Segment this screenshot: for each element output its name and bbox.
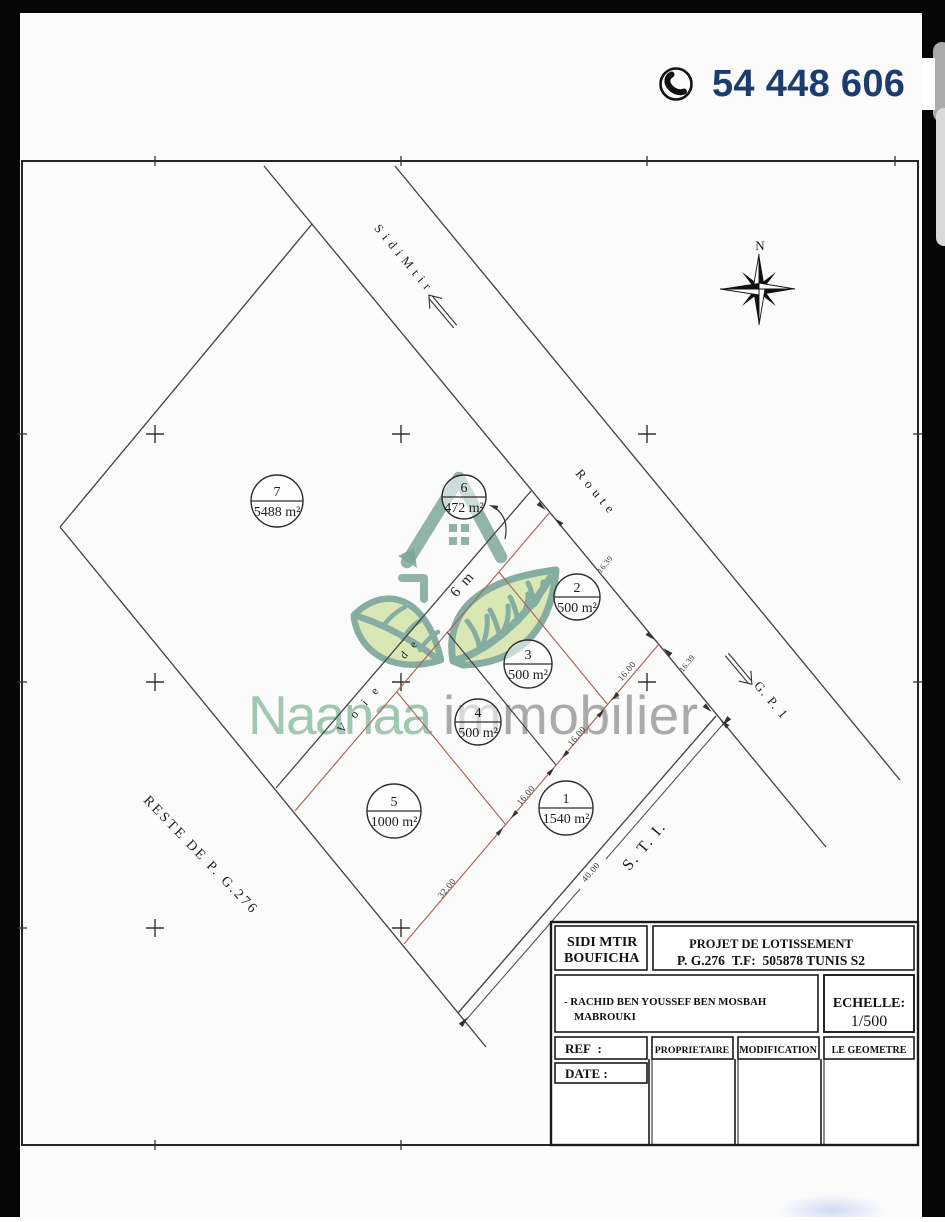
svg-text:1000 m²: 1000 m² xyxy=(371,815,418,830)
svg-text:PROJET DE LOTISSEMENT: PROJET DE LOTISSEMENT xyxy=(689,937,853,951)
svg-text:500 m²: 500 m² xyxy=(508,668,548,683)
svg-text:MODIFICATION: MODIFICATION xyxy=(739,1045,817,1056)
svg-text:N: N xyxy=(755,238,765,253)
svg-text:54 448 606: 54 448 606 xyxy=(712,63,905,105)
svg-text:5: 5 xyxy=(391,795,398,810)
svg-text:LE GEOMETRE: LE GEOMETRE xyxy=(832,1045,907,1056)
svg-text:472 m²: 472 m² xyxy=(444,501,484,516)
svg-text:2: 2 xyxy=(574,581,581,596)
svg-text:P. G.276 T.F: 505878 TUNIS S: P. G.276 T.F: 505878 TUNIS S2 xyxy=(677,953,865,968)
svg-text:500 m²: 500 m² xyxy=(557,601,597,616)
svg-text:PROPRIETAIRE: PROPRIETAIRE xyxy=(655,1045,730,1056)
svg-text:- RACHID BEN YOUSSEF BEN MOSBA: - RACHID BEN YOUSSEF BEN MOSBAH xyxy=(564,996,767,1008)
svg-text:Naanaa: Naanaa xyxy=(248,684,433,746)
svg-text:1540 m²: 1540 m² xyxy=(543,812,590,827)
svg-text:SIDI MTIR: SIDI MTIR xyxy=(567,935,638,950)
svg-text:4: 4 xyxy=(475,706,482,721)
svg-text:7: 7 xyxy=(274,485,281,500)
svg-text:ECHELLE:: ECHELLE: xyxy=(833,996,905,1011)
svg-text:1: 1 xyxy=(563,792,570,807)
svg-text:5488 m²: 5488 m² xyxy=(254,505,301,520)
svg-text:1/500: 1/500 xyxy=(851,1013,887,1030)
svg-text:3: 3 xyxy=(525,648,532,663)
svg-text:500 m²: 500 m² xyxy=(458,726,498,741)
svg-text:BOUFICHA: BOUFICHA xyxy=(564,951,640,966)
svg-text:DATE :: DATE : xyxy=(565,1066,608,1081)
svg-text:MABROUKI: MABROUKI xyxy=(574,1011,636,1023)
svg-text:6: 6 xyxy=(461,481,468,496)
svg-text:REF :: REF : xyxy=(565,1041,602,1056)
